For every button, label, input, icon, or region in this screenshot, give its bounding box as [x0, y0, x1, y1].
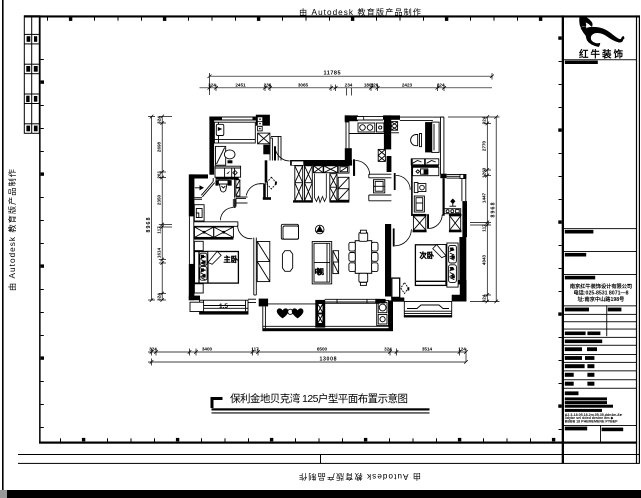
svg-text:次卧: 次卧 [420, 251, 435, 260]
svg-text:2698: 2698 [157, 141, 162, 152]
svg-text:326: 326 [371, 82, 379, 87]
svg-text:117: 117 [157, 226, 162, 234]
svg-text:3400: 3400 [202, 347, 213, 352]
svg-text:红牛装饰: 红牛装饰 [579, 49, 623, 61]
svg-text:由 Autodesk 教育版产品制作: 由 Autodesk 教育版产品制作 [7, 169, 17, 291]
svg-text:324: 324 [437, 82, 445, 87]
svg-text:4043: 4043 [482, 254, 487, 265]
svg-text:由 Autodesk 教育版产品制作: 由 Autodesk 教育版产品制作 [299, 472, 421, 482]
svg-text:BBBB 18 PHEMEMENE PYBEP: BBBB 18 PHEMEMENE PYBEP [565, 419, 618, 423]
svg-text:234: 234 [345, 82, 353, 87]
svg-text:6500: 6500 [317, 347, 328, 352]
svg-text:117: 117 [251, 347, 259, 352]
svg-text:324: 324 [482, 294, 487, 302]
svg-text:11785: 11785 [324, 71, 341, 77]
svg-text:124: 124 [458, 347, 466, 352]
svg-text:电视: 电视 [314, 267, 324, 276]
svg-text:2350: 2350 [157, 194, 162, 205]
svg-text:3065: 3065 [298, 82, 309, 87]
svg-text:主卧: 主卧 [224, 255, 239, 264]
svg-text:址:南京中山路198号: 址:南京中山路198号 [578, 295, 625, 303]
svg-text:电话:025-8531 8071—8: 电话:025-8531 8071—8 [573, 289, 628, 297]
svg-text:2770: 2770 [482, 140, 487, 151]
svg-text:261: 261 [157, 171, 162, 179]
svg-text:324: 324 [157, 293, 162, 301]
svg-text:13008: 13008 [320, 357, 337, 363]
svg-text:8968: 8968 [491, 202, 497, 217]
svg-text:324: 324 [157, 116, 162, 124]
svg-text:1614: 1614 [157, 247, 162, 258]
svg-text:保利金地贝克湾 125户型平面布置示意图: 保利金地贝克湾 125户型平面布置示意图 [230, 392, 408, 405]
svg-text:南京红牛装饰设计有限公司: 南京红牛装饰设计有限公司 [570, 282, 632, 290]
svg-text:1263: 1263 [482, 167, 487, 178]
svg-text:2423: 2423 [402, 82, 413, 87]
svg-text:1447: 1447 [482, 192, 487, 203]
svg-text:117: 117 [482, 224, 487, 232]
svg-text:324: 324 [384, 347, 392, 352]
svg-text:8968: 8968 [146, 217, 152, 232]
svg-text:324: 324 [208, 82, 216, 87]
svg-text:324: 324 [149, 347, 157, 352]
svg-text:236: 236 [264, 82, 272, 87]
svg-text:3514: 3514 [422, 347, 433, 352]
svg-text:324: 324 [482, 116, 487, 124]
svg-text:1.5: 1.5 [219, 303, 228, 310]
svg-text:由 Autodesk 教育版产品制作: 由 Autodesk 教育版产品制作 [299, 7, 421, 17]
svg-text:2451: 2451 [235, 82, 246, 87]
